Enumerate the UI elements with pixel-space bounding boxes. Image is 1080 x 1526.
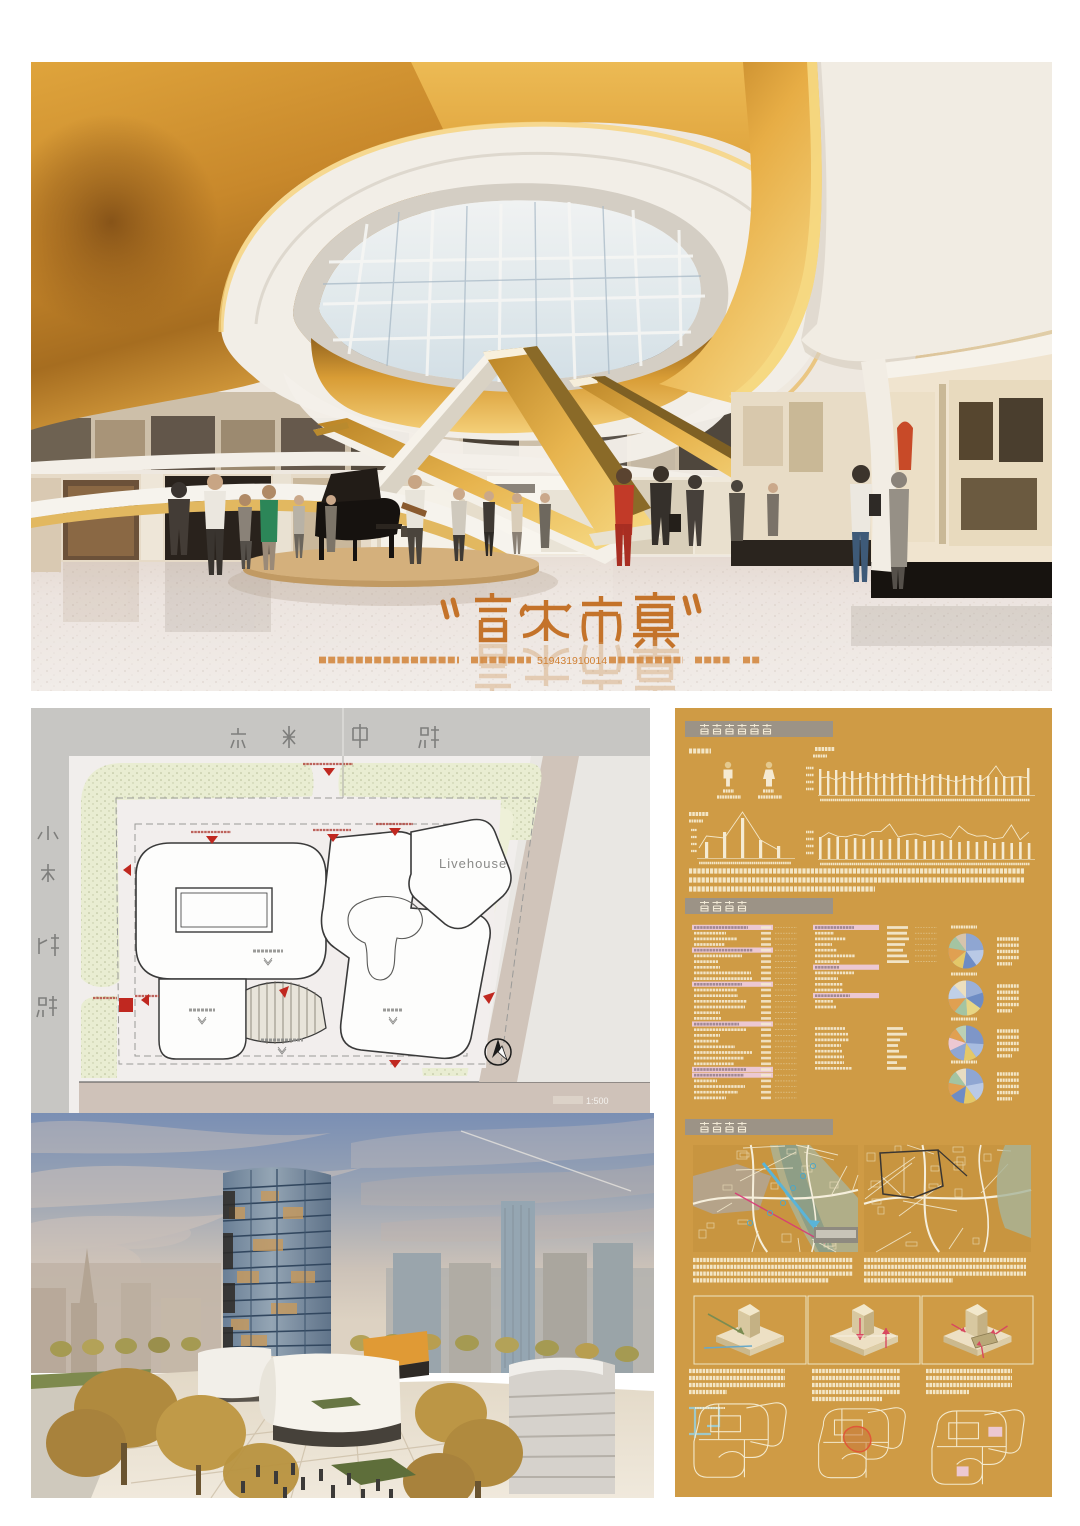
svg-text:Livehouse: Livehouse [439, 856, 507, 871]
svg-text:519431910014: 519431910014 [537, 655, 607, 667]
svg-text:1:500: 1:500 [586, 1096, 609, 1106]
